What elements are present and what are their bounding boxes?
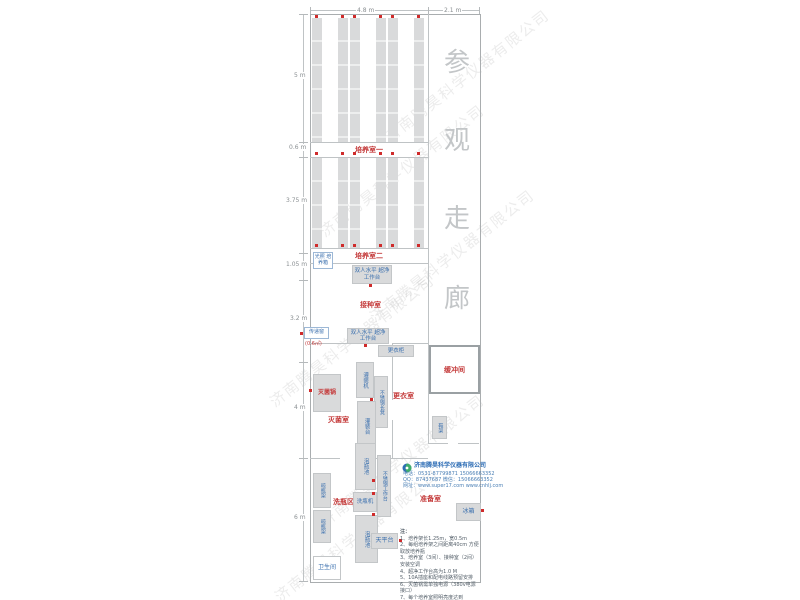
dim-left-4m: 4 m xyxy=(293,404,307,411)
dim-tick xyxy=(299,458,308,459)
corridor-title-char: 观 xyxy=(444,120,470,157)
dim-tick xyxy=(299,157,308,158)
interior-wall xyxy=(392,420,393,458)
marker-dot xyxy=(481,509,484,512)
pass-window-size: (0.6㎡) xyxy=(305,340,322,347)
marker-dot xyxy=(341,15,344,18)
culture-shelf xyxy=(414,18,424,142)
marker-dot xyxy=(300,332,303,335)
left-dimension-line xyxy=(303,14,304,582)
culture-shelf xyxy=(312,18,322,142)
culture-shelf xyxy=(376,158,386,248)
dim-tick xyxy=(299,362,308,363)
room-label-prep: 准备室 xyxy=(420,494,441,504)
wardrobe: 更衣柜 xyxy=(378,345,414,357)
culture-shelf xyxy=(312,158,322,248)
dim-left-6m: 6 m xyxy=(293,514,307,521)
interior-wall xyxy=(310,157,428,158)
soaking-pool: 泡瓶池 xyxy=(355,443,376,490)
dim-left-5m: 5 m xyxy=(293,72,307,79)
dim-tick xyxy=(428,7,429,14)
dim-top-lab-width: 4.8 m xyxy=(356,7,375,14)
marker-dot xyxy=(391,244,394,247)
culture-shelf xyxy=(414,158,424,248)
notes-title: 注： xyxy=(400,529,480,536)
dim-left-3-2m: 3.2 m xyxy=(289,315,308,322)
dim-tick xyxy=(479,7,480,14)
culture-shelf xyxy=(388,18,398,142)
bottle-washer: 洗瓶机 xyxy=(353,492,377,512)
drying-rack: 晾瓶架 xyxy=(313,510,331,543)
marker-dot xyxy=(372,513,375,516)
room-label-washing-area: 洗瓶区 xyxy=(333,497,354,507)
dim-tick xyxy=(299,280,308,281)
corridor-title-char: 参 xyxy=(444,42,470,79)
room-label-inoculation: 接种室 xyxy=(360,300,381,310)
steel-worktable: 不锈钢工作台 xyxy=(377,455,391,517)
culture-shelf xyxy=(388,158,398,248)
room-label-buffer: 缓冲间 xyxy=(444,365,465,375)
filling-machine: 灌装机 xyxy=(356,362,374,398)
pass-window: 传递窗 xyxy=(304,327,329,339)
toilet: 卫生间 xyxy=(313,556,341,580)
dim-tick xyxy=(299,253,308,254)
clean-bench: 双人水平 超净工作台 xyxy=(352,265,392,284)
room-label-sterilization: 灭菌室 xyxy=(328,415,349,425)
marker-dot xyxy=(417,244,420,247)
sterilizer-label: 灭菌锅 xyxy=(318,390,336,397)
note-item: 6、灭菌锅需单独电源（380v电源接口） xyxy=(400,582,480,595)
marker-dot xyxy=(315,244,318,247)
culture-shelf xyxy=(376,18,386,142)
culture-shelf xyxy=(350,158,360,248)
company-name: 济南腾昊科学仪器有限公司 xyxy=(414,460,486,469)
culture-shelf xyxy=(350,18,360,142)
corridor-title-char: 走 xyxy=(444,198,470,235)
interior-wall xyxy=(428,443,448,444)
dim-left-1-05m: 1.05 m xyxy=(285,261,308,268)
drying-rack: 晾瓶架 xyxy=(313,473,331,508)
fridge: 冰箱 xyxy=(456,503,481,521)
dim-tick xyxy=(299,142,308,143)
sterilizer: 灭菌锅 xyxy=(313,374,341,412)
marker-dot xyxy=(364,344,367,347)
marker-dot xyxy=(369,284,372,287)
dim-tick xyxy=(310,7,311,14)
culture-shelf xyxy=(338,158,348,248)
marker-dot xyxy=(391,15,394,18)
dim-left-0-6m: 0.6 m xyxy=(288,144,307,151)
clean-bench: 双人水平 超净工作台 xyxy=(347,328,389,344)
room-label-culture1: 培养室一 xyxy=(355,145,383,155)
interior-wall xyxy=(392,343,428,344)
dim-tick xyxy=(299,581,308,582)
floor-plan: 济南腾昊科学仪器有限公司 济南腾昊科学仪器有限公司 济南腾昊科学仪器有限公司 济… xyxy=(0,0,800,600)
marker-dot xyxy=(417,15,420,18)
shoe-rack: 鞋架 xyxy=(432,416,447,439)
balance-table: 天平台 xyxy=(371,533,398,549)
notes-block: 注： 1、培养架长1.25m，宽0.5m 2、每组培养架之间距离40cm 方便取… xyxy=(400,529,480,600)
marker-dot xyxy=(315,15,318,18)
marker-dot xyxy=(370,398,373,401)
room-label-changing: 更衣室 xyxy=(393,391,414,401)
dim-top-corridor-width: 2.1 m xyxy=(443,7,462,14)
dim-left-3-75m: 3.75 m xyxy=(285,197,308,204)
marker-dot xyxy=(309,389,312,392)
marker-dot xyxy=(353,244,356,247)
marker-dot xyxy=(341,244,344,247)
company-web: 网址：www.super17.com www.cnhlj.com xyxy=(403,482,503,489)
note-item: 7、每个培养室照明亮度达到+150lux左右 xyxy=(400,595,480,600)
buffer-room: 缓冲间 xyxy=(429,345,480,394)
dim-tick xyxy=(299,14,308,15)
note-item: 2、每组培养架之间距离40cm 方便取放培养瓶 xyxy=(400,542,480,555)
note-item: 5、10A插座和配电线路预留安排 xyxy=(400,575,480,582)
room-label-culture2: 培养室二 xyxy=(355,251,383,261)
company-logo-icon xyxy=(402,458,412,468)
interior-wall xyxy=(310,458,340,459)
marker-dot xyxy=(372,479,375,482)
note-item: 3、培养室（3间）、接种室（2间）安装空调 xyxy=(400,555,480,568)
interior-wall xyxy=(458,443,479,444)
culture-shelf xyxy=(338,18,348,142)
light-incubator: 光照 培养箱 xyxy=(313,252,333,269)
marker-dot xyxy=(372,492,375,495)
marker-dot xyxy=(353,15,356,18)
marker-dot xyxy=(379,244,382,247)
marker-dot xyxy=(379,15,382,18)
steel-bench: 不锈钢长凳 xyxy=(374,376,388,428)
corridor-title-char: 廊 xyxy=(444,278,470,315)
